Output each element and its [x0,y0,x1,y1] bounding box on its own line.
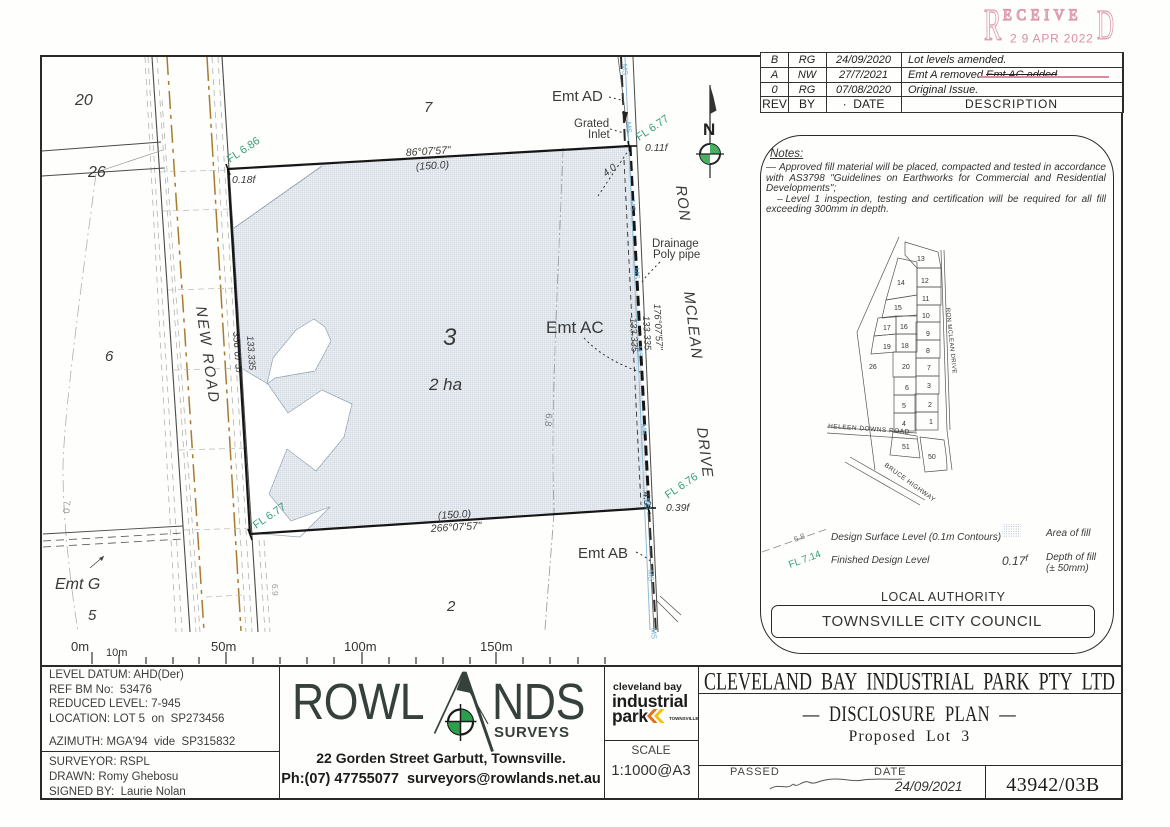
svg-text:20: 20 [74,92,93,109]
svg-text:Inlet: Inlet [588,129,611,141]
svg-text:N: N [703,120,715,139]
svg-text:D: D [1097,3,1114,49]
svg-text:7: 7 [424,99,433,116]
svg-text:4: 4 [902,421,906,428]
svg-text:Finished Design Level: Finished Design Level [831,555,930,566]
svg-text:1: 1 [929,419,933,426]
svg-text:50: 50 [928,454,936,461]
svg-text:MS: MS [643,498,653,510]
svg-text:FL 6.77: FL 6.77 [634,113,671,144]
svg-text:26: 26 [87,164,106,181]
svg-text:7: 7 [927,365,931,372]
svg-text:Poly pipe: Poly pipe [653,249,700,261]
svg-text:FL 7.14: FL 7.14 [787,549,823,571]
svg-text:12: 12 [921,278,929,285]
svg-text:Emt AD: Emt AD [552,88,603,105]
svg-text:(± 50mm): (± 50mm) [1046,563,1089,574]
svg-text:ECEIVE: ECEIVE [1003,6,1082,24]
svg-text:6: 6 [105,348,114,365]
svg-text:DRIVE: DRIVE [693,426,716,479]
svg-text:26: 26 [869,364,877,371]
svg-text:6.8: 6.8 [793,531,807,543]
svg-text:5: 5 [902,403,906,410]
svg-text:15: 15 [894,305,902,312]
svg-text:(150.0): (150.0) [415,159,449,173]
svg-text:13: 13 [917,256,925,263]
svg-text:2 9 APR 2022: 2 9 APR 2022 [1010,32,1094,46]
svg-text:BRUCE HIGHWAY: BRUCE HIGHWAY [883,462,937,504]
svg-text:2: 2 [446,598,456,615]
svg-text:NEW ROAD: NEW ROAD [192,305,223,405]
svg-text:MS: MS [620,64,630,76]
svg-text:266°07'57": 266°07'57" [429,520,483,535]
svg-text:100m: 100m [344,639,377,654]
svg-text:51: 51 [902,444,910,451]
svg-text:MS: MS [649,628,659,640]
svg-text:19: 19 [883,344,891,351]
svg-text:9: 9 [926,331,930,338]
svg-text:6.9: 6.9 [270,584,280,596]
svg-text:8: 8 [926,348,930,355]
svg-text:17: 17 [883,325,891,332]
svg-text:11: 11 [922,296,929,303]
svg-text:Depth of fill: Depth of fill [1046,552,1097,563]
svg-text:Emt AC: Emt AC [546,318,604,337]
svg-text:Emt AB: Emt AB [578,545,628,562]
svg-text:Design Surface Level (0.1m Con: Design Surface Level (0.1m Contours) [831,532,1001,543]
svg-text:16: 16 [900,324,908,331]
svg-text:R: R [984,0,1002,50]
svg-text:5: 5 [88,607,97,624]
svg-text:10m: 10m [106,647,127,659]
svg-text:0m: 0m [71,639,89,654]
svg-text:10: 10 [922,313,930,320]
svg-text:2 ha: 2 ha [428,375,462,394]
svg-text:MS: MS [624,122,634,134]
svg-text:MS: MS [628,200,638,212]
svg-text:FL 6.76: FL 6.76 [663,471,700,502]
svg-text:RON MCLEAN DRIVE: RON MCLEAN DRIVE [944,308,957,375]
svg-text:0.11f: 0.11f [645,142,669,154]
svg-text:3: 3 [443,324,457,351]
svg-text:MS: MS [632,268,642,280]
svg-text:RON: RON [672,184,693,222]
svg-text:MS: MS [639,424,649,436]
svg-text:18: 18 [901,343,909,350]
svg-text:6.8: 6.8 [542,413,554,427]
svg-text:50m: 50m [211,639,236,654]
svg-text:MCLEAN: MCLEAN [680,290,705,360]
svg-text:150m: 150m [480,639,513,654]
svg-text:6: 6 [905,385,909,392]
svg-text:14: 14 [897,280,905,287]
svg-text:0.17f: 0.17f [1002,553,1029,568]
svg-text:MS: MS [635,346,645,358]
svg-text:MS: MS [646,570,656,582]
svg-text:Area of fill: Area of fill [1045,528,1091,539]
svg-text:FL 6.86: FL 6.86 [225,135,262,166]
svg-text:20: 20 [902,364,910,371]
svg-text:356°07'57": 356°07'57" [230,331,244,378]
svg-text:2: 2 [928,402,932,409]
svg-text:0.18f: 0.18f [232,174,256,186]
svg-text:3: 3 [927,383,931,390]
svg-text:0.39f: 0.39f [666,502,690,514]
svg-text:7.0: 7.0 [60,500,72,514]
svg-text:Emt G: Emt G [55,576,100,593]
